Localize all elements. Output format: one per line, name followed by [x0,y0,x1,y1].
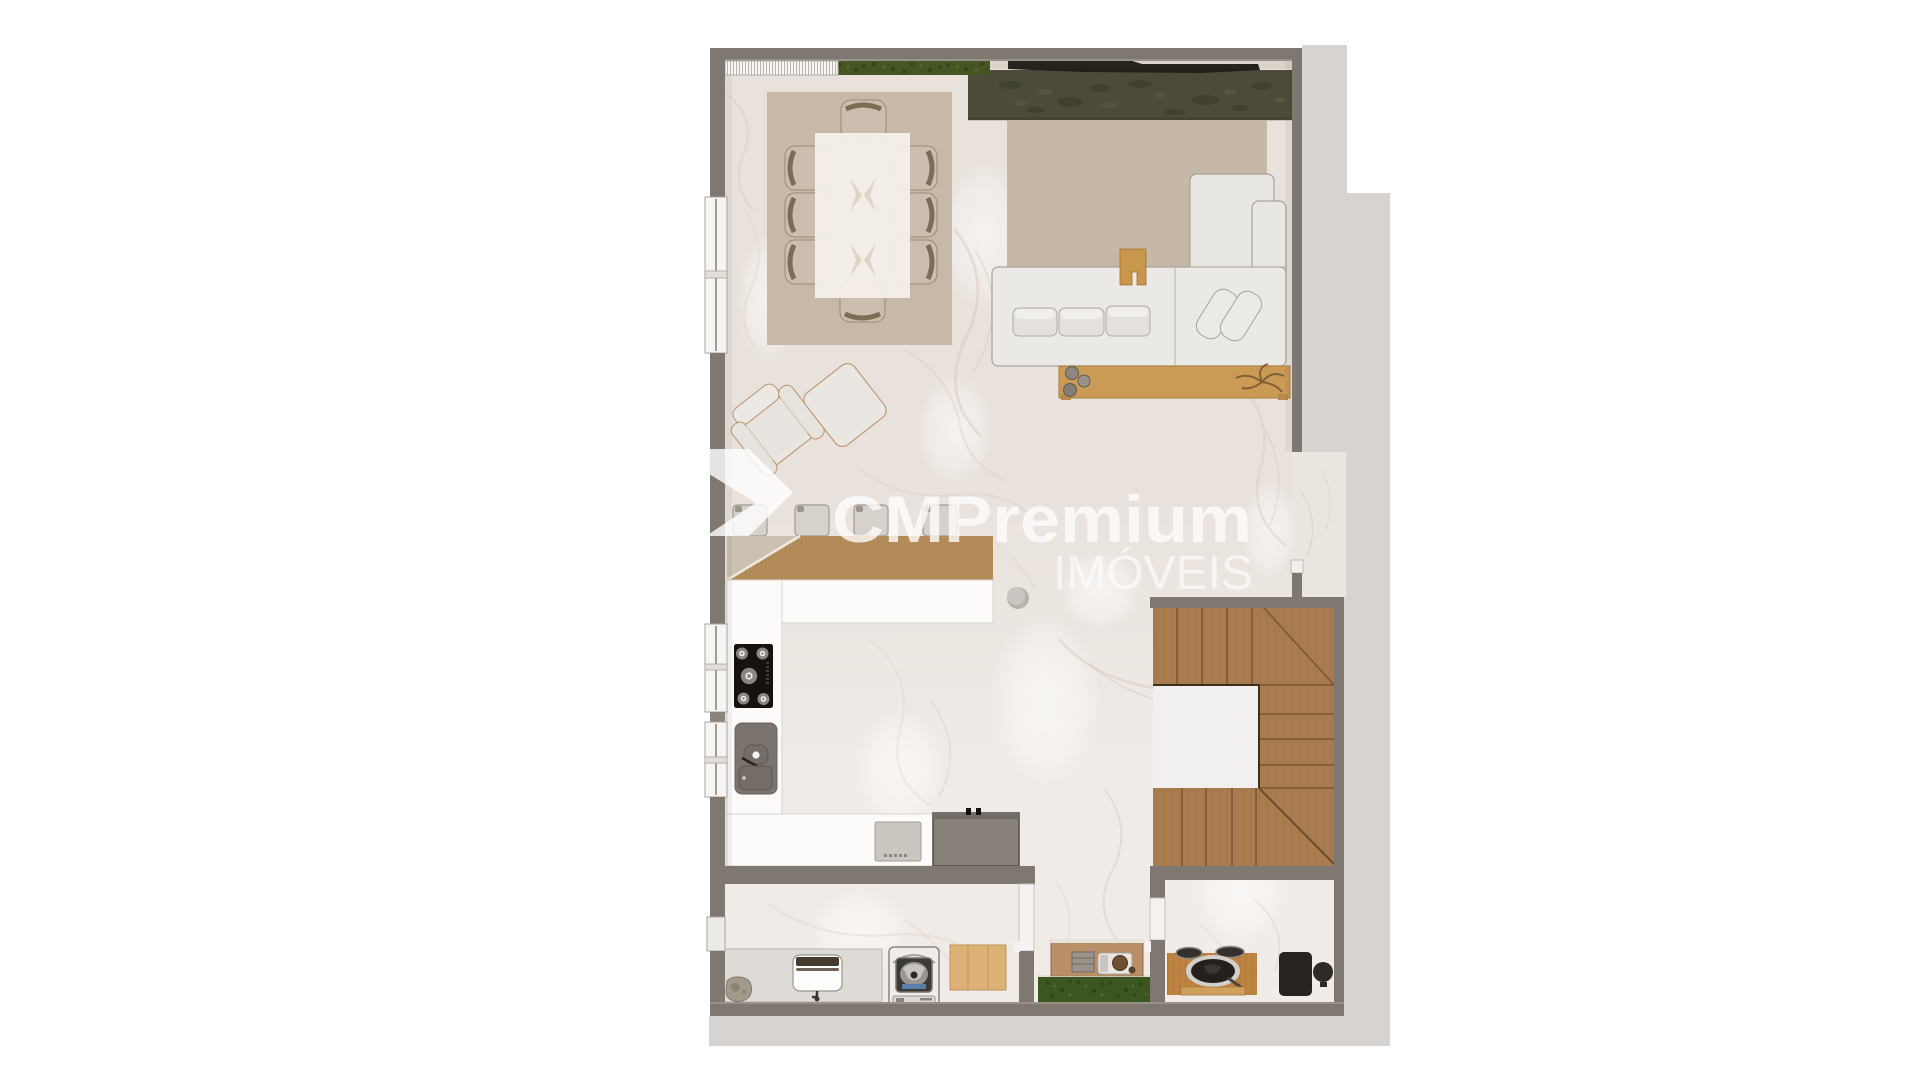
svg-text:IMÓVEIS: IMÓVEIS [1053,546,1253,600]
svg-text:CMPremium: CMPremium [832,482,1252,556]
